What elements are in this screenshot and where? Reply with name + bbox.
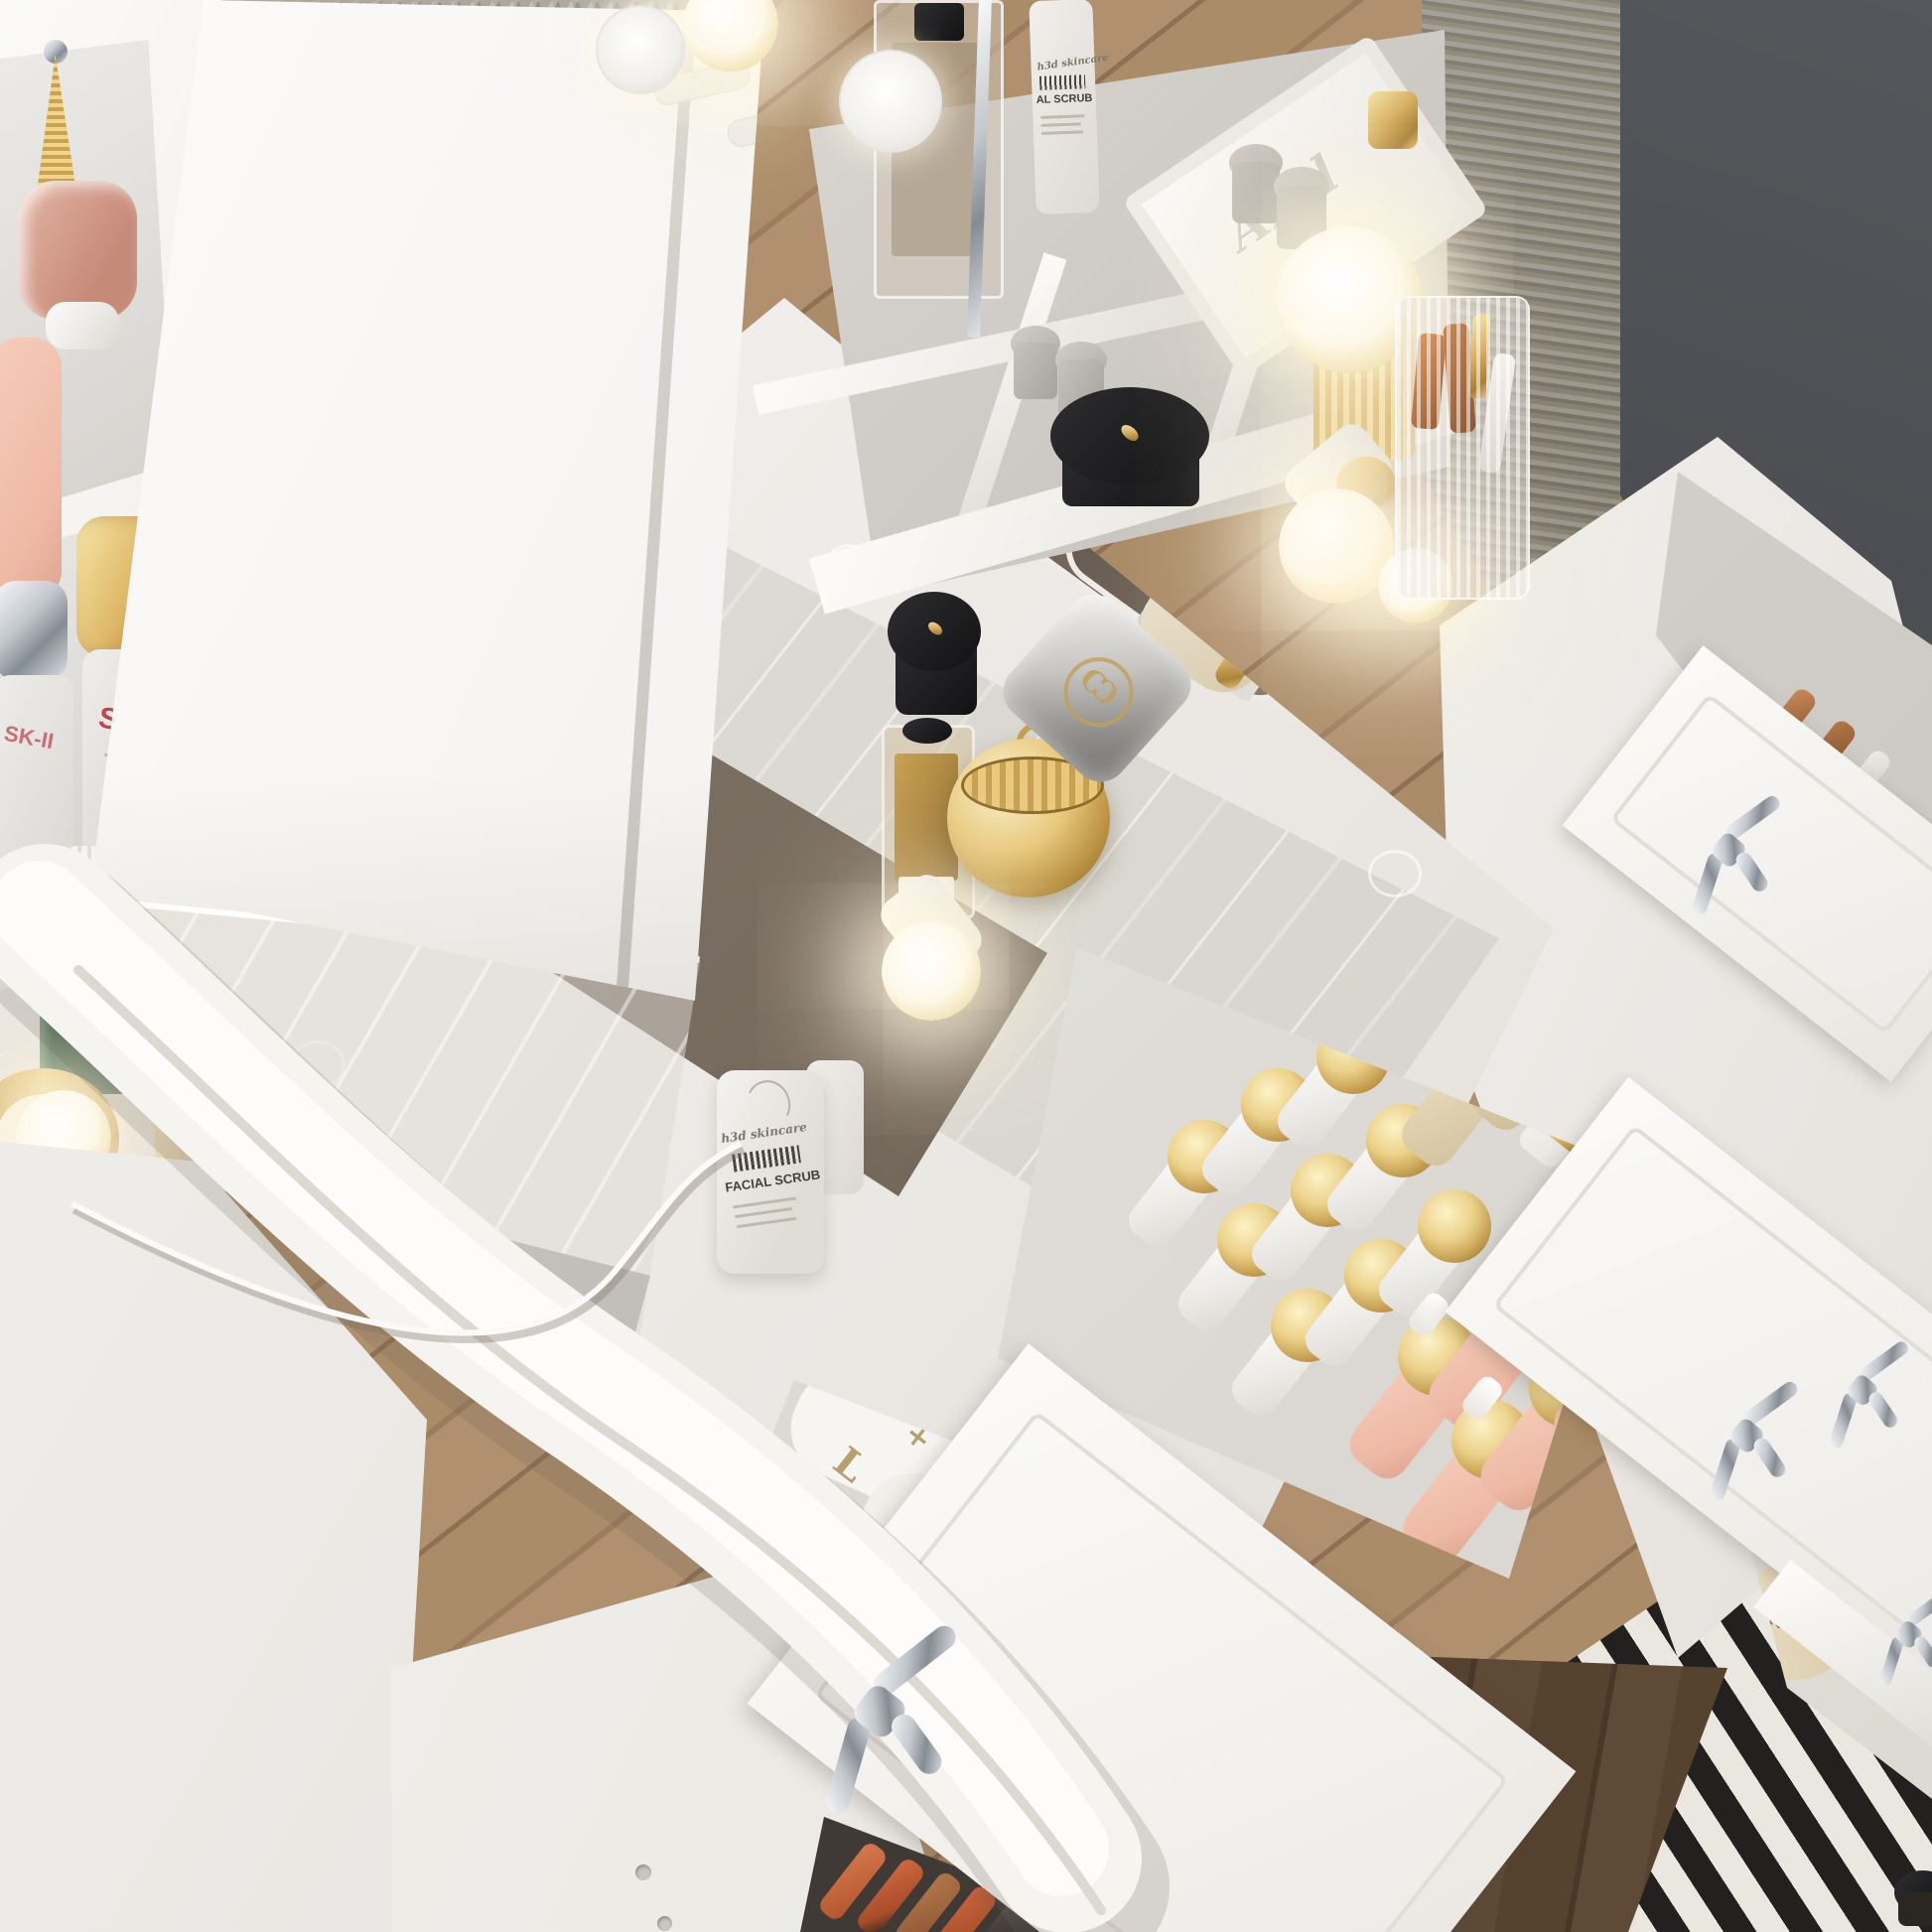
- vanity-product-photo: SK-II SK-II YSL YSL OR ROUGE: [0, 0, 1932, 1932]
